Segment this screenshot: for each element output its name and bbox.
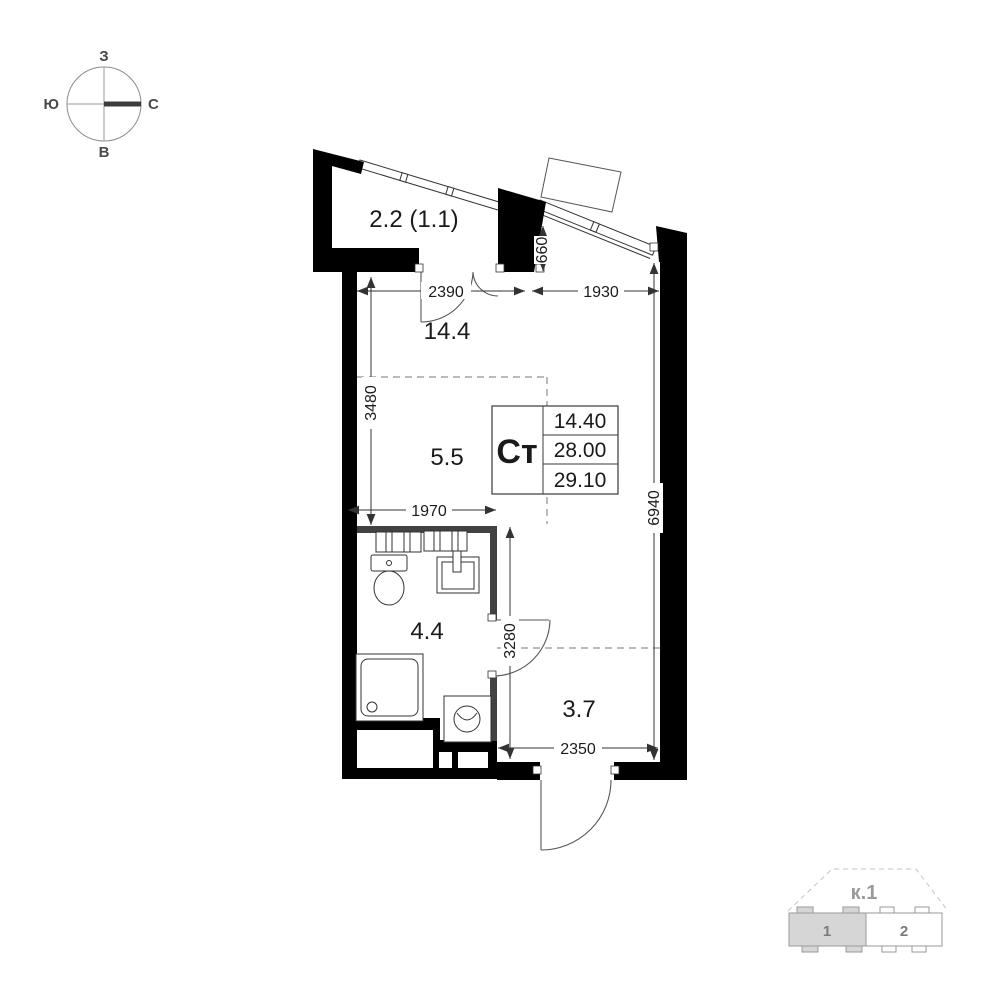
wall-entry-right <box>614 762 687 780</box>
key-plan-notch <box>880 907 894 913</box>
entry-door <box>541 780 611 850</box>
building-label: к.1 <box>851 882 878 904</box>
partition-bathroom-right-upper <box>490 526 497 620</box>
shaft-opening-small-1 <box>439 752 452 768</box>
area-with-balcony-value: 29.10 <box>554 469 607 492</box>
floor-plan-page: З Ю С В <box>0 0 1000 1000</box>
window-end-cap <box>650 243 658 251</box>
dim-window-width: 1930 <box>583 284 619 301</box>
dim-hall-height: 3280 <box>502 623 519 659</box>
jamb <box>533 766 541 774</box>
key-plan-notch <box>846 946 862 952</box>
shower-tray <box>356 654 423 721</box>
dim-hall-width: 2350 <box>560 741 596 758</box>
wall-right <box>660 256 687 780</box>
jamb <box>488 671 496 678</box>
shaft-opening-small-2 <box>458 752 488 768</box>
wall-left <box>342 271 357 779</box>
section-2-label: 2 <box>900 923 908 940</box>
building-key-plan: к.1 1 2 <box>788 869 948 952</box>
key-plan-notch <box>882 946 896 952</box>
sink <box>437 551 479 593</box>
jamb <box>496 264 504 272</box>
dim-kitchen-width: 1970 <box>411 503 447 520</box>
room-label-kitchen: 5.5 <box>430 444 463 471</box>
compass-rose: З Ю С В <box>44 48 159 161</box>
room-label-bathroom: 4.4 <box>410 618 443 645</box>
balcony-window <box>358 160 504 211</box>
dim-niche-depth: 660 <box>534 237 551 264</box>
compass-label-south: Ю <box>44 96 59 113</box>
key-plan-notch <box>912 946 926 952</box>
area-total-value: 28.00 <box>554 439 607 462</box>
area-living-value: 14.40 <box>554 410 607 433</box>
jamb <box>488 614 496 621</box>
shaft-opening-large <box>357 730 433 768</box>
section-1-label: 1 <box>823 923 831 940</box>
jamb <box>415 264 423 272</box>
room-label-hallway: 3.7 <box>562 696 595 723</box>
jamb <box>611 766 619 774</box>
dim-balcony-width: 2390 <box>428 284 464 301</box>
toilet <box>371 555 407 605</box>
room-label-balcony: 2.2 (1.1) <box>369 206 458 233</box>
vent-cabinet-2 <box>424 531 467 551</box>
dim-kitchen-height: 3480 <box>363 385 380 421</box>
key-plan-notch <box>797 907 813 913</box>
washing-machine <box>444 696 491 742</box>
key-plan-notch <box>843 907 859 913</box>
vent-cabinet-1 <box>376 532 421 552</box>
neighbor-balcony-slab <box>541 158 621 212</box>
wall-balcony-left <box>313 149 364 250</box>
key-plan-notch <box>915 907 929 913</box>
key-plan-notch <box>802 946 818 952</box>
compass-label-west: З <box>99 48 108 65</box>
apartment-info-box: Ст 14.40 28.00 29.10 <box>492 406 618 494</box>
dim-room-depth: 6940 <box>646 490 663 526</box>
compass-label-east: В <box>99 144 110 161</box>
wall-balcony-bottom <box>313 248 419 272</box>
room-label-living: 14.4 <box>424 318 471 345</box>
compass-label-north: С <box>148 96 159 113</box>
apartment-type-label: Ст <box>496 433 537 471</box>
floor-plan-canvas: З Ю С В <box>0 0 1000 1000</box>
